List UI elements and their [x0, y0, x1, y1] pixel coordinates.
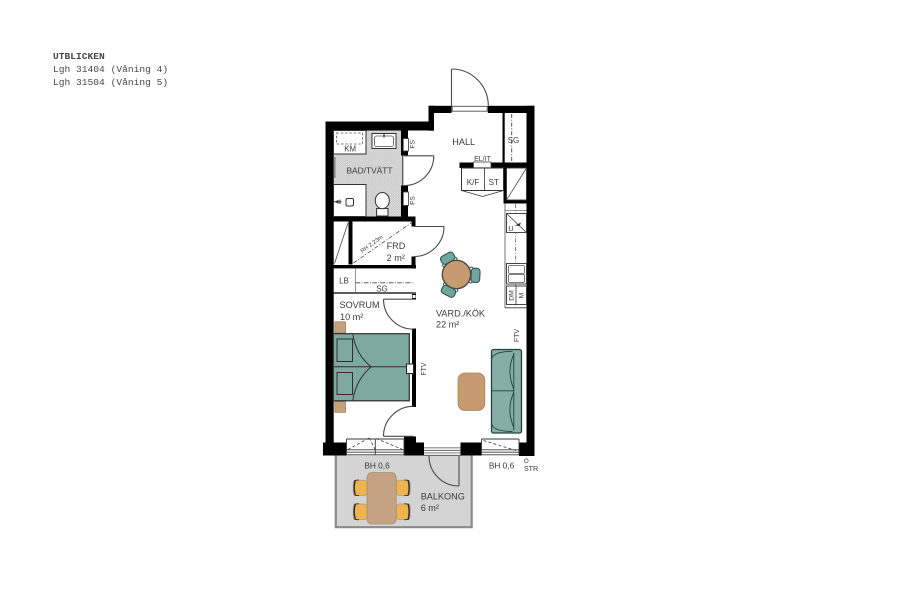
svg-text:SOVRUM: SOVRUM	[340, 300, 380, 310]
svg-text:STR: STR	[524, 464, 538, 473]
svg-text:6 m²: 6 m²	[421, 503, 439, 513]
svg-text:10 m²: 10 m²	[340, 312, 363, 322]
svg-text:FS: FS	[410, 196, 417, 205]
svg-text:UTBLICKEN: UTBLICKEN	[53, 51, 105, 62]
svg-text:BH 0,6: BH 0,6	[489, 460, 515, 470]
svg-text:FRD: FRD	[387, 241, 406, 251]
svg-text:EL/IT: EL/IT	[474, 156, 491, 163]
svg-text:FS: FS	[410, 139, 417, 148]
svg-text:HALL: HALL	[452, 137, 475, 147]
svg-text:M: M	[518, 292, 525, 298]
svg-text:VARD./KÖK: VARD./KÖK	[436, 308, 485, 318]
svg-text:BAD/TVÄTT: BAD/TVÄTT	[346, 166, 392, 176]
svg-text:Lgh 31404 (Våning 4): Lgh 31404 (Våning 4)	[53, 64, 168, 75]
svg-text:KM: KM	[344, 145, 356, 154]
svg-text:FTV: FTV	[421, 362, 428, 376]
svg-text:DM: DM	[509, 290, 516, 301]
svg-text:Lgh 31504 (Våning 5): Lgh 31504 (Våning 5)	[53, 77, 168, 88]
svg-text:U: U	[508, 224, 513, 233]
svg-text:LB: LB	[339, 277, 349, 286]
svg-text:SG: SG	[508, 136, 520, 145]
svg-text:RH 2,23m: RH 2,23m	[360, 234, 385, 254]
svg-text:2 m²: 2 m²	[387, 253, 405, 263]
svg-text:SG: SG	[376, 285, 388, 294]
svg-text:22 m²: 22 m²	[436, 320, 459, 330]
svg-text:BALKONG: BALKONG	[421, 492, 465, 502]
svg-text:K/F: K/F	[467, 178, 480, 187]
svg-text:FTV: FTV	[514, 329, 521, 343]
svg-text:ST: ST	[489, 178, 499, 187]
svg-text:BH 0,6: BH 0,6	[364, 460, 390, 470]
